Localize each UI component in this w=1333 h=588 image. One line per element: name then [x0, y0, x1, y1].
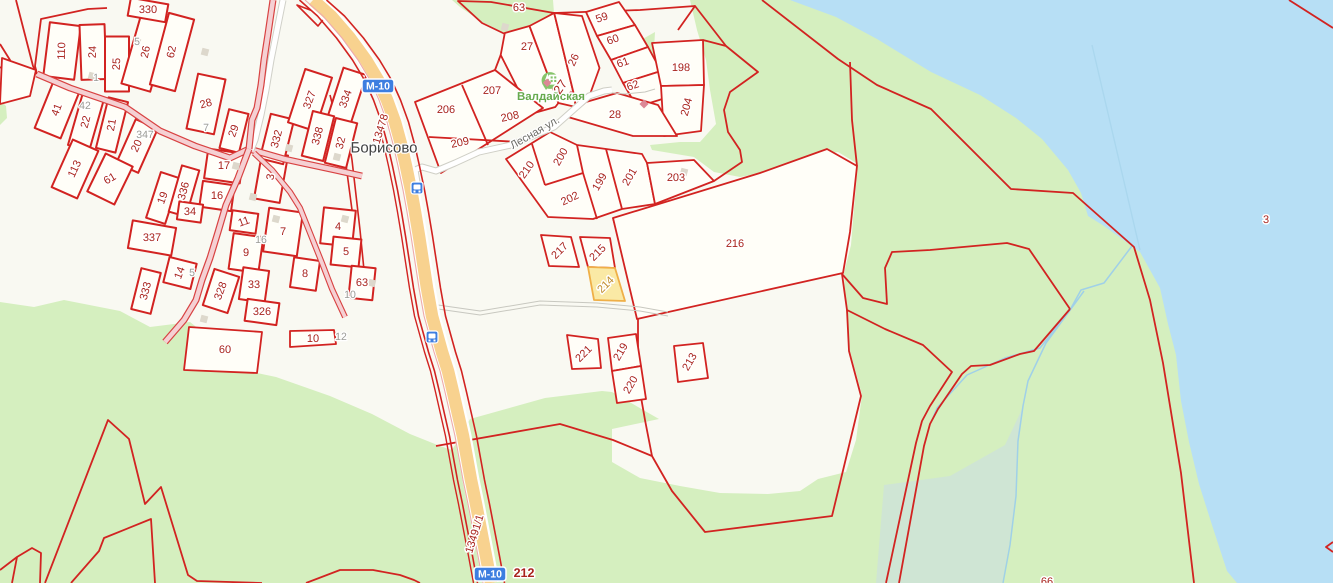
svg-text:60: 60 — [219, 344, 231, 356]
svg-text:63: 63 — [513, 2, 525, 14]
svg-text:63: 63 — [356, 277, 368, 289]
svg-text:8: 8 — [302, 268, 308, 280]
svg-text:1: 1 — [93, 72, 99, 84]
svg-text:212: 212 — [514, 566, 535, 580]
svg-text:7: 7 — [280, 226, 286, 238]
svg-text:Борисово: Борисово — [350, 140, 417, 157]
svg-text:3: 3 — [1263, 214, 1269, 226]
svg-text:16: 16 — [211, 190, 223, 202]
svg-text:М-10: М-10 — [366, 81, 390, 93]
svg-text:337: 337 — [143, 232, 161, 244]
svg-text:33: 33 — [248, 279, 260, 291]
svg-text:21: 21 — [105, 118, 119, 132]
svg-text:4: 4 — [335, 221, 341, 233]
svg-text:34: 34 — [184, 206, 196, 218]
svg-text:66: 66 — [1041, 576, 1053, 583]
svg-text:28: 28 — [609, 109, 621, 121]
svg-text:347: 347 — [136, 129, 154, 141]
svg-text:5: 5 — [134, 36, 140, 48]
svg-text:10: 10 — [344, 289, 356, 301]
svg-text:24: 24 — [87, 46, 99, 59]
svg-text:26: 26 — [139, 45, 153, 59]
svg-text:110: 110 — [56, 42, 69, 60]
svg-text:25: 25 — [111, 58, 123, 71]
svg-text:9: 9 — [243, 247, 249, 259]
svg-text:7: 7 — [203, 122, 209, 134]
svg-text:206: 206 — [437, 104, 455, 116]
svg-text:16: 16 — [255, 234, 267, 246]
svg-text:198: 198 — [672, 62, 690, 74]
svg-text:42: 42 — [79, 100, 91, 112]
svg-text:5: 5 — [343, 246, 349, 258]
svg-text:62: 62 — [165, 45, 179, 59]
svg-text:207: 207 — [483, 85, 501, 97]
svg-text:Валдайская: Валдайская — [517, 91, 585, 103]
svg-text:216: 216 — [726, 238, 744, 250]
svg-text:М-10: М-10 — [478, 569, 502, 581]
svg-text:27: 27 — [521, 41, 533, 53]
svg-text:330: 330 — [139, 4, 157, 16]
svg-text:12: 12 — [335, 331, 347, 343]
svg-text:10: 10 — [307, 333, 319, 345]
svg-text:17: 17 — [218, 160, 230, 172]
svg-text:326: 326 — [253, 306, 271, 318]
svg-text:5: 5 — [189, 267, 195, 279]
svg-text:203: 203 — [667, 172, 685, 184]
